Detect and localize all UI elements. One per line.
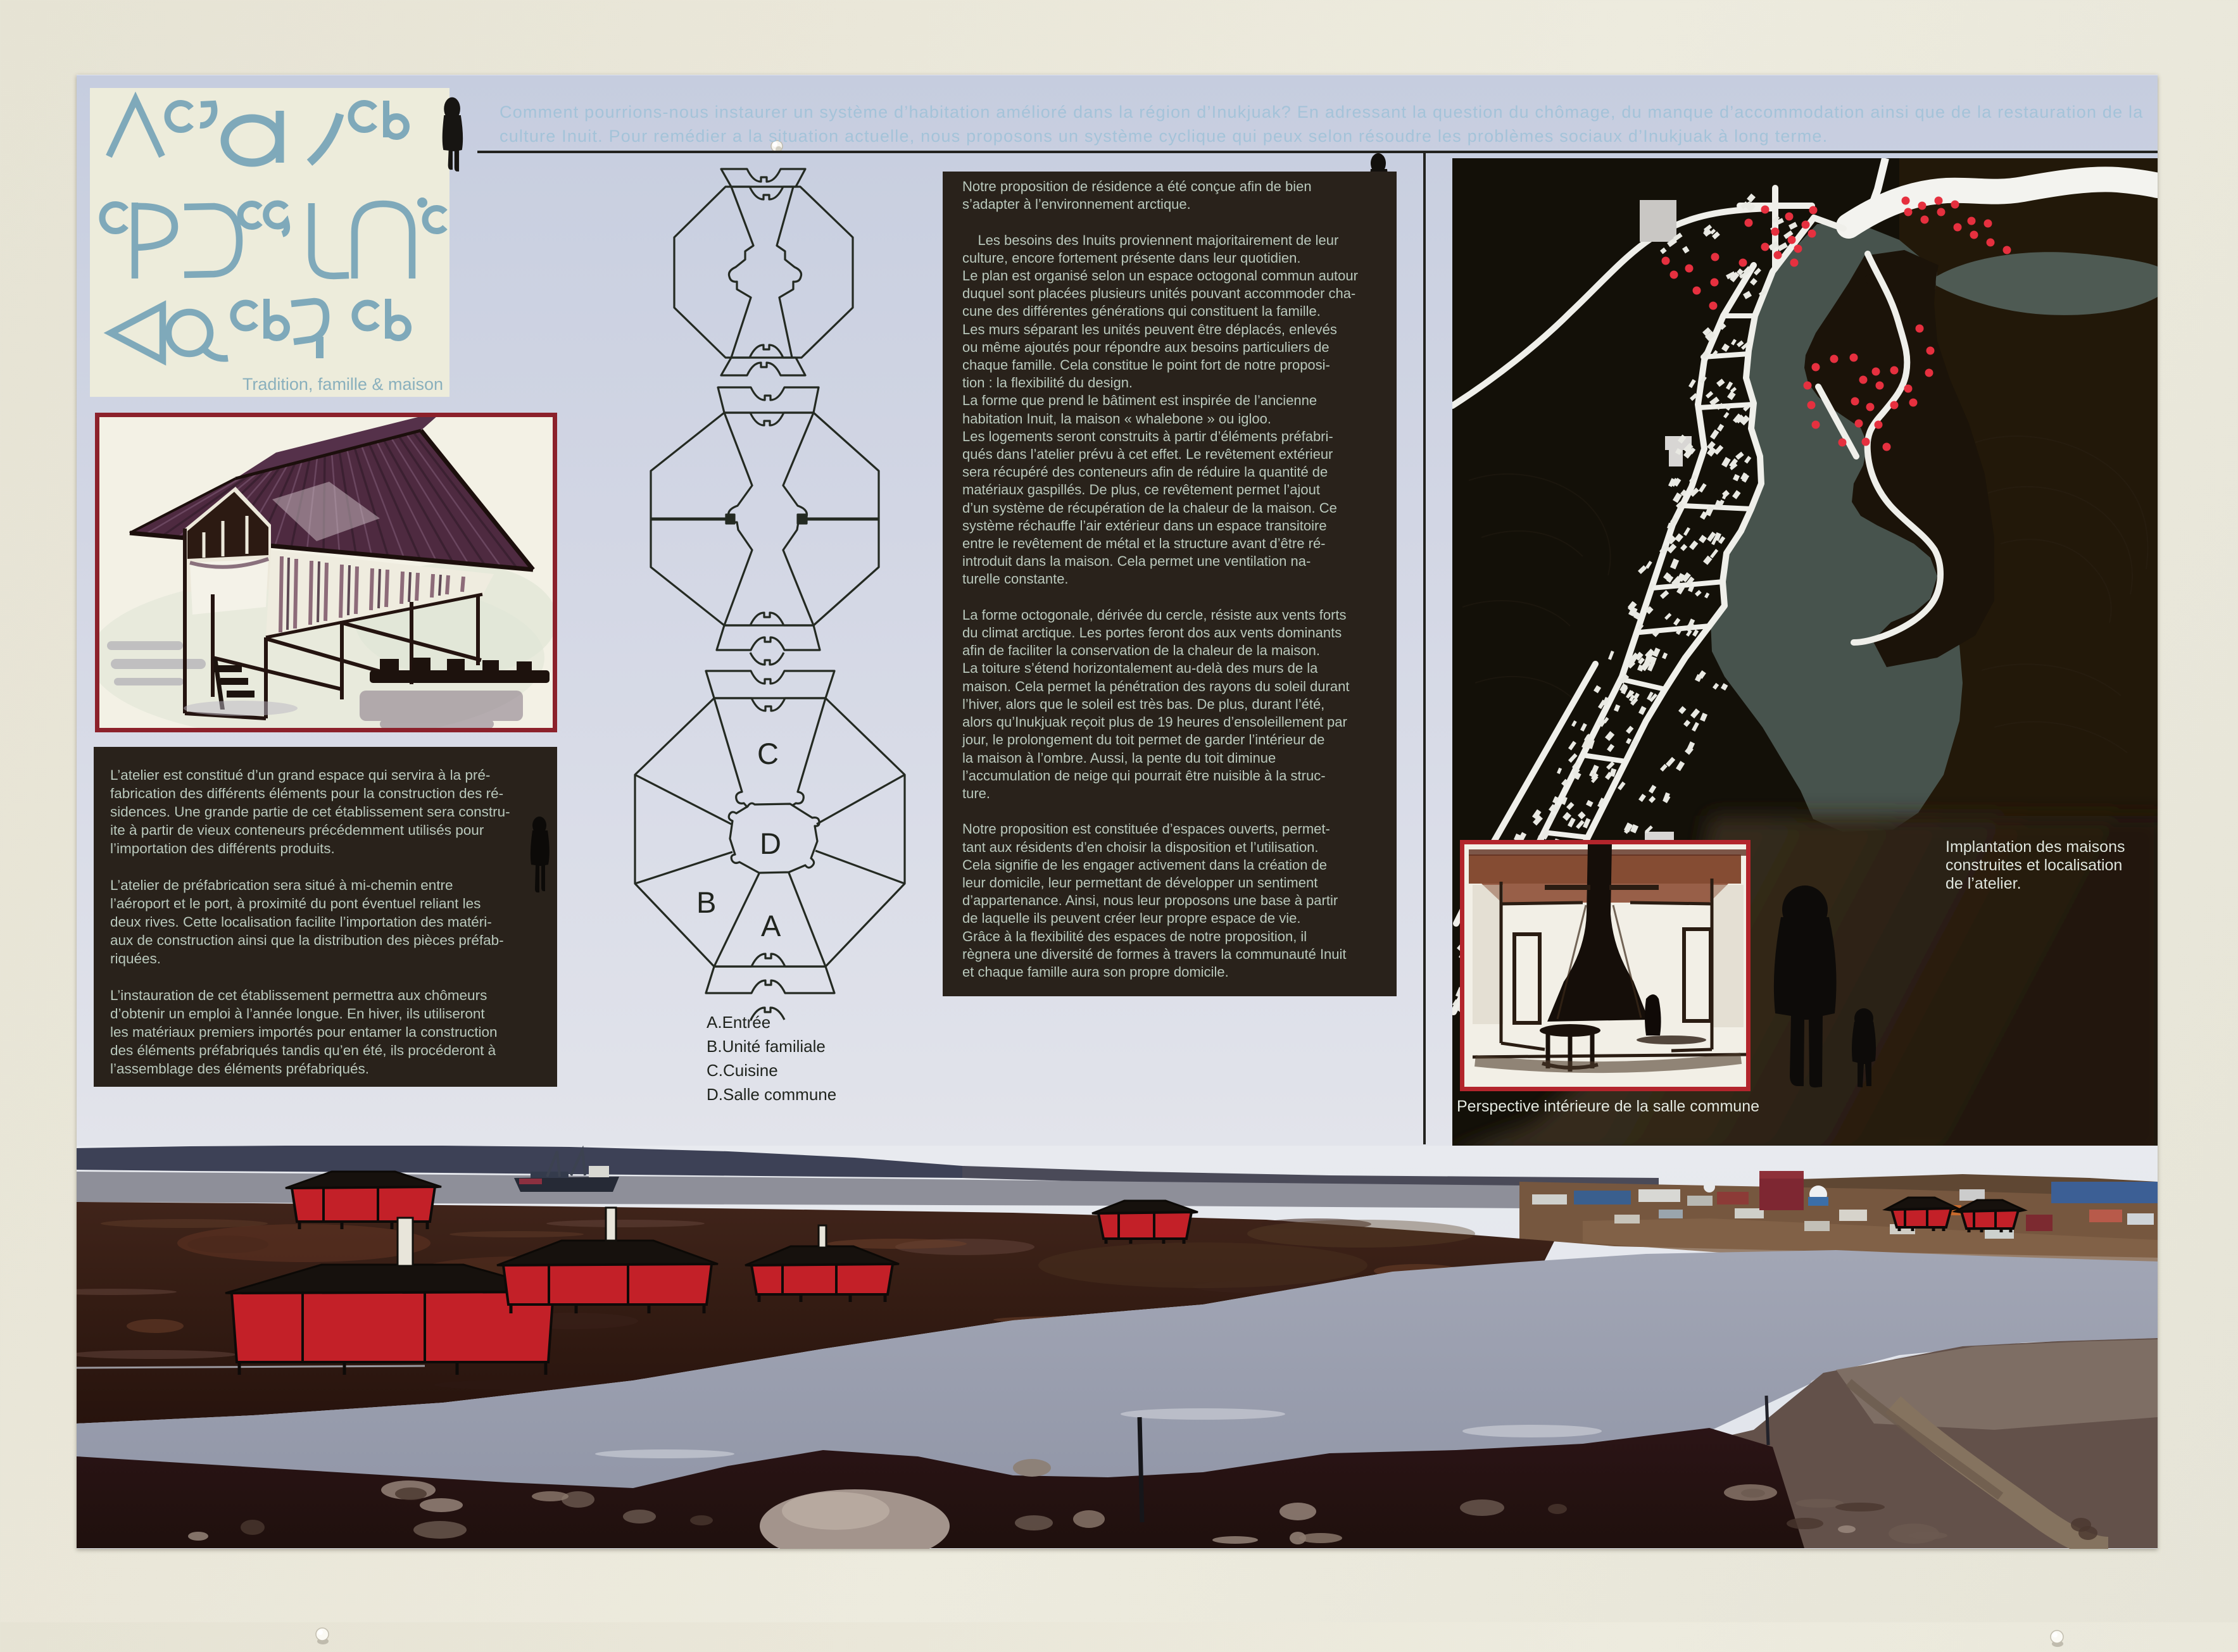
svg-text:D: D (760, 827, 781, 860)
svg-text:Tradition, famille & maison: Tradition, famille & maison (242, 375, 443, 394)
svg-text:B: B (696, 885, 716, 919)
svg-text:A: A (761, 909, 781, 942)
svg-text:C: C (757, 737, 779, 770)
